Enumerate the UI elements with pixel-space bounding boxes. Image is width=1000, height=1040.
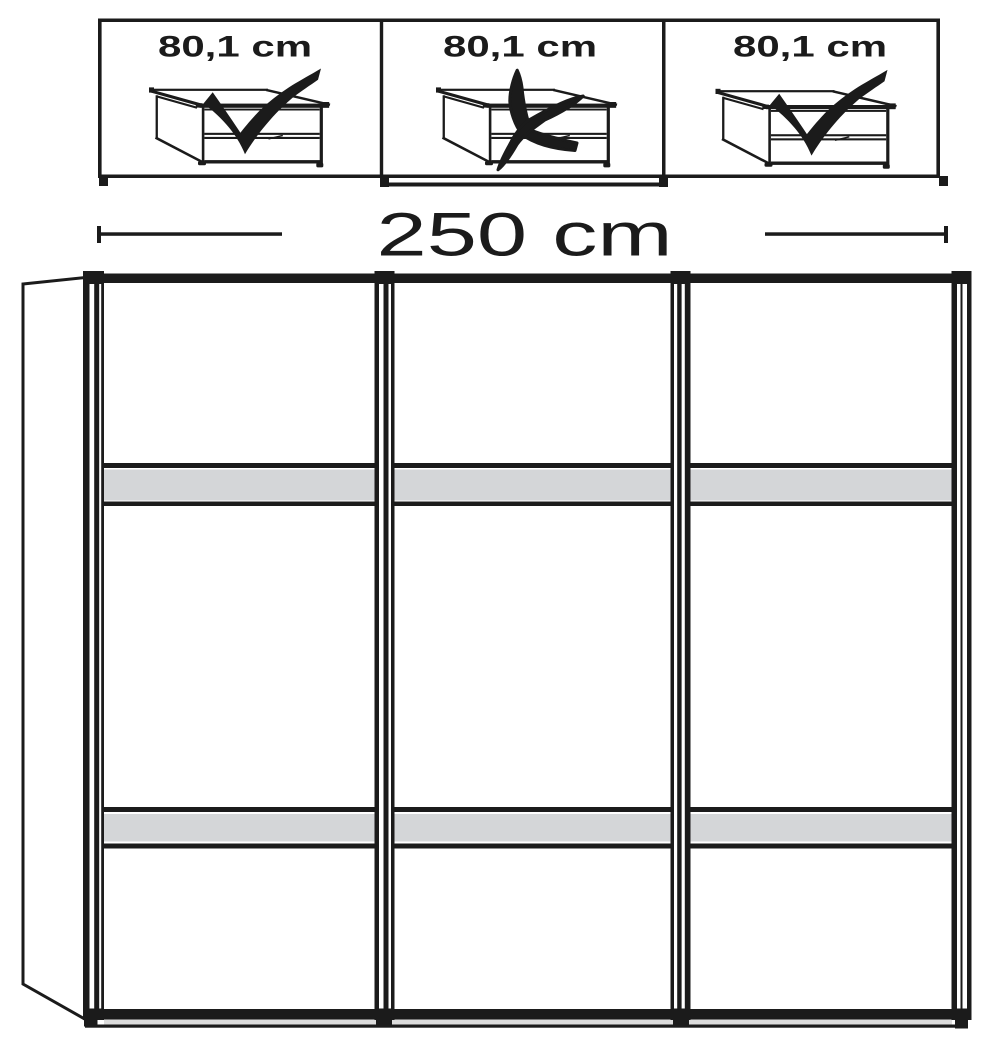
svg-text:80,1 cm: 80,1 cm (158, 29, 312, 63)
svg-text:80,1 cm: 80,1 cm (443, 29, 597, 63)
svg-text:80,1 cm: 80,1 cm (733, 29, 887, 63)
svg-text:250 cm: 250 cm (376, 201, 672, 269)
